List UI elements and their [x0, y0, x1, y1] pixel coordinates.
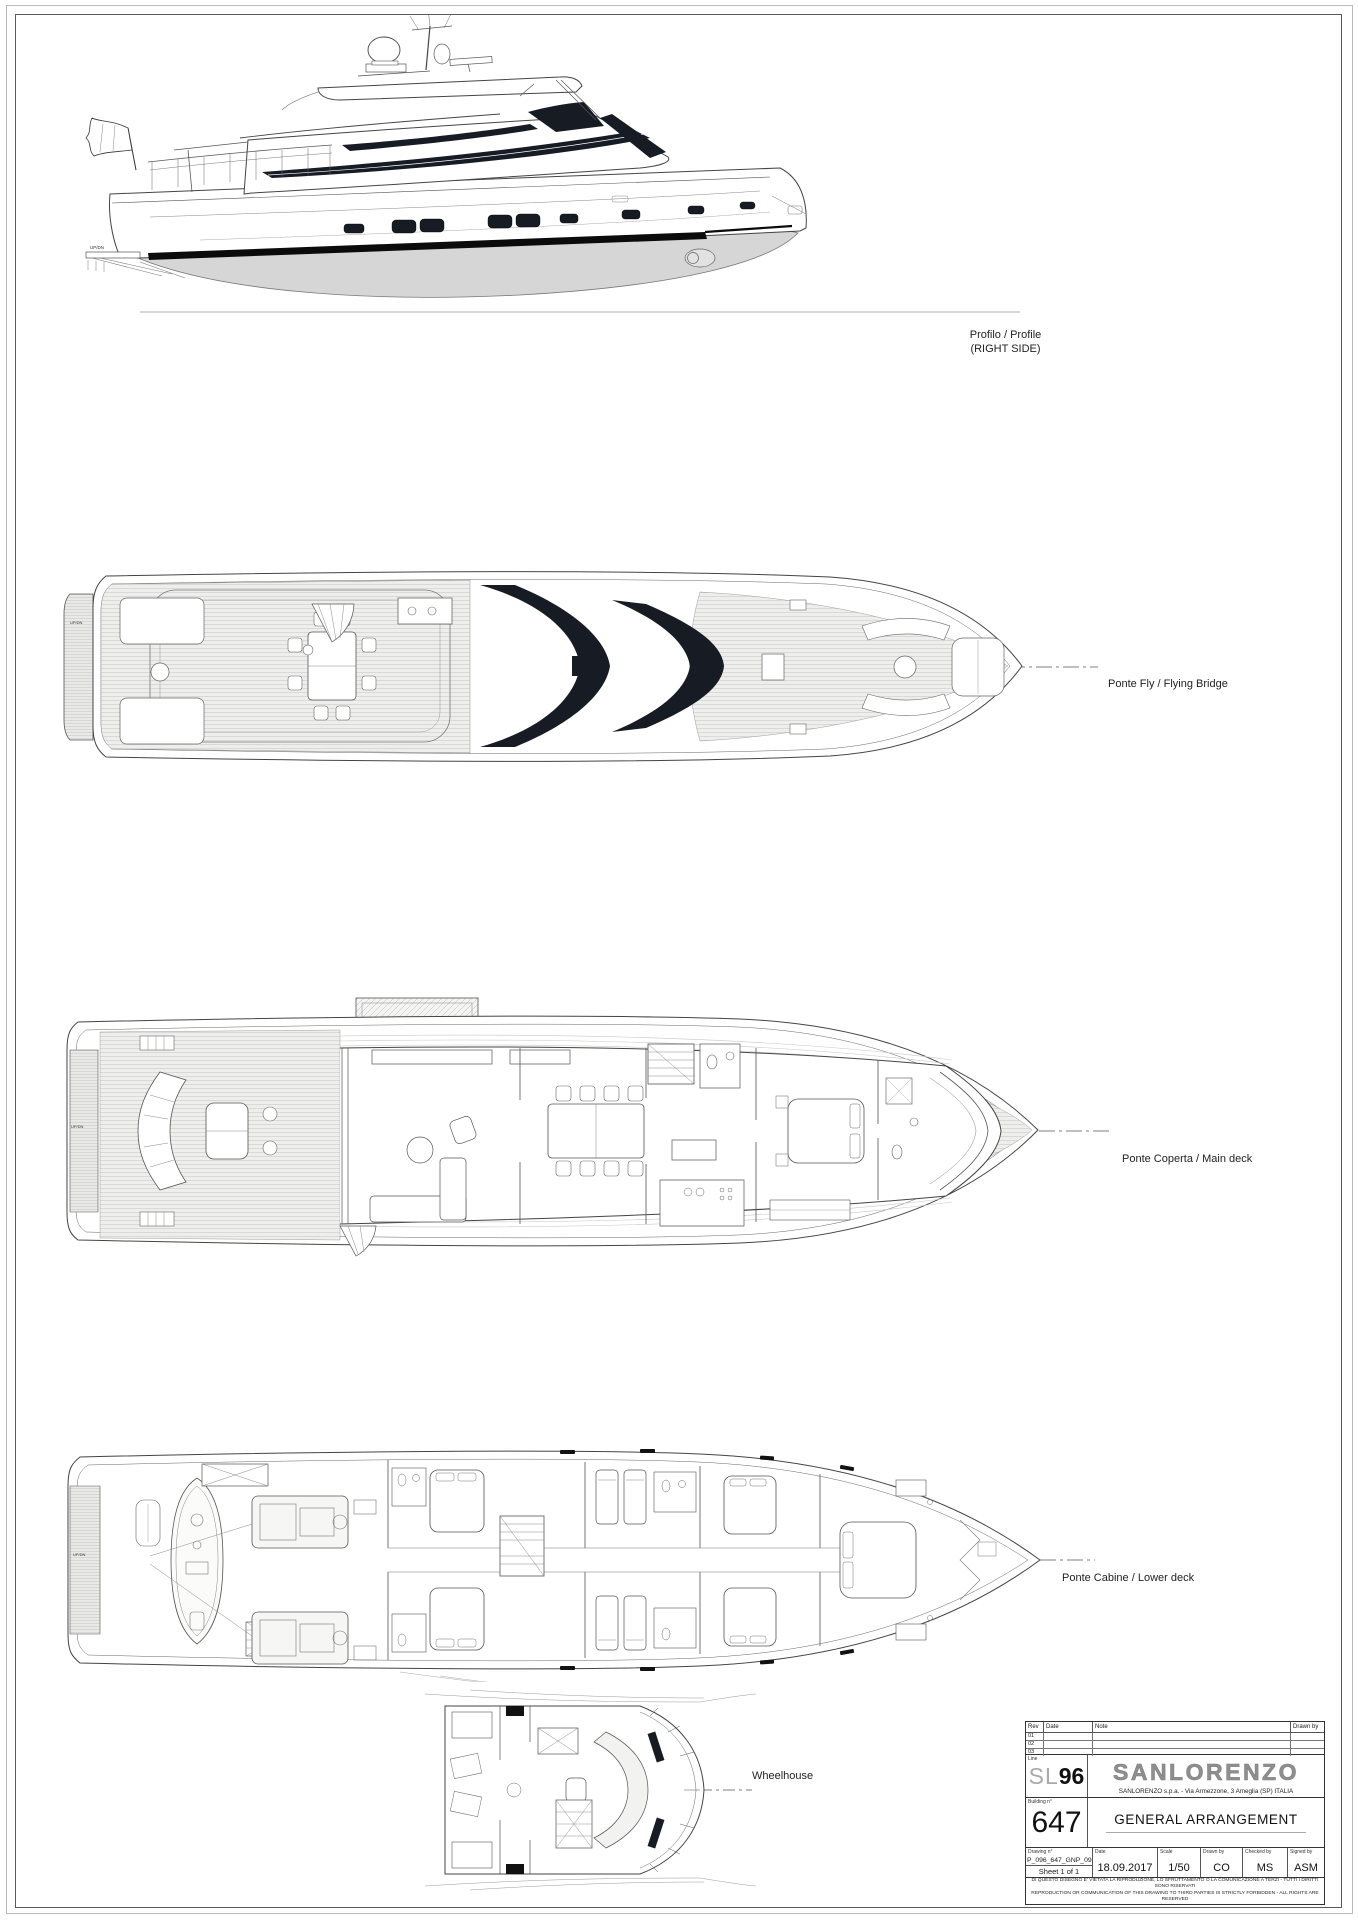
checked-by-cell: Checked by MS: [1243, 1848, 1288, 1877]
model-prefix: SL: [1029, 1763, 1059, 1790]
scale-cell: Scale 1/50: [1158, 1848, 1201, 1877]
drawing-no-label: Drawing n°: [1028, 1849, 1053, 1855]
drawn-by-cell: Drawn by CO: [1201, 1848, 1243, 1877]
sanlorenzo-logo: SANLORENZO: [1113, 1761, 1299, 1784]
profile-drawing: UP/DN: [60, 15, 1020, 360]
main-deck-drawing: UP/DN: [55, 995, 1115, 1257]
rev-header: Rev: [1026, 1722, 1044, 1732]
fly-bridge-label: Ponte Fly / Flying Bridge: [1108, 678, 1228, 692]
model-cell: Line SL96: [1026, 1755, 1088, 1797]
fly-bridge-view: UP/DN: [58, 548, 1103, 793]
lower-deck-drawing: UP/DN: [55, 1442, 1100, 1682]
sheet-value: Sheet 1 of 1: [1026, 1866, 1092, 1877]
wheelhouse-label: Wheelhouse: [752, 1770, 813, 1784]
profile-label-line2: (RIGHT SIDE): [948, 343, 1063, 357]
main-deck-view: UP/DN: [55, 995, 1115, 1257]
date-header: Date: [1044, 1722, 1093, 1732]
title-block: Rev Date Note Drawn by 01 02 03 Line S: [1025, 1721, 1325, 1905]
building-cell: Building n° 647: [1026, 1798, 1088, 1847]
building-label: Building n°: [1028, 1799, 1052, 1805]
signed-by-cell: Signed by ASM: [1288, 1848, 1324, 1877]
line-label: Line: [1028, 1756, 1037, 1762]
profile-label-line1: Profilo / Profile: [948, 329, 1063, 343]
main-updn-label: UP/DN: [71, 1124, 84, 1129]
main-deck-label: Ponte Coperta / Main deck: [1122, 1153, 1252, 1167]
lower-deck-label: Ponte Cabine / Lower deck: [1062, 1572, 1194, 1586]
note-header: Note: [1093, 1722, 1291, 1732]
revision-table: Rev Date Note Drawn by 01 02 03: [1026, 1722, 1324, 1755]
signed-by-label: Signed by: [1290, 1849, 1312, 1855]
date-label: Date: [1095, 1849, 1106, 1855]
profile-updn-label: UP/DN: [90, 245, 104, 250]
drawing-title: GENERAL ARRANGEMENT: [1114, 1812, 1297, 1827]
disclaimer: DI QUESTO DISEGNO E' VIETATA LA RIPRODUZ…: [1026, 1878, 1324, 1904]
rev-row-01: 01: [1026, 1733, 1044, 1740]
title-underline: [1106, 1832, 1306, 1833]
disclaimer-line2: REPRODUCTION OR COMMUNICATION OF THIS DR…: [1029, 1891, 1321, 1904]
profile-view: UP/DN: [60, 15, 1020, 360]
building-number: 647: [1031, 1806, 1081, 1840]
drawnby-header: Drawn by: [1291, 1722, 1324, 1732]
drawing-title-cell: GENERAL ARRANGEMENT: [1088, 1798, 1324, 1847]
wheelhouse-view: [420, 1688, 760, 1910]
disclaimer-line1: DI QUESTO DISEGNO E' VIETATA LA RIPRODUZ…: [1029, 1878, 1321, 1891]
profile-label: Profilo / Profile (RIGHT SIDE): [948, 329, 1063, 357]
lower-deck-view: UP/DN: [55, 1442, 1100, 1682]
scale-label: Scale: [1160, 1849, 1173, 1855]
fly-bridge-drawing: UP/DN: [58, 548, 1103, 793]
brand-cell: SANLORENZO SANLORENZO s.p.a. - Via Armez…: [1088, 1755, 1324, 1797]
rev-row-02: 02: [1026, 1741, 1044, 1748]
drawing-number-cell: Drawing n° P_096_647_GNP_09 Sheet 1 of 1: [1026, 1848, 1093, 1877]
checked-by-label: Checked by: [1245, 1849, 1271, 1855]
lower-updn-label: UP/DN: [73, 1552, 86, 1557]
wheelhouse-drawing: [420, 1688, 760, 1910]
drawing-sheet: UP/DN: [0, 0, 1358, 1920]
model-number: 96: [1059, 1763, 1085, 1790]
drawing-no-value: P_096_647_GNP_09: [1027, 1857, 1092, 1864]
fly-updn-label: UP/DN: [70, 620, 83, 625]
date-cell: Date 18.09.2017: [1093, 1848, 1158, 1877]
brand-address: SANLORENZO s.p.a. - Via Armezzone, 3 Ame…: [1119, 1788, 1293, 1795]
drawn-by-label: Drawn by: [1203, 1849, 1224, 1855]
